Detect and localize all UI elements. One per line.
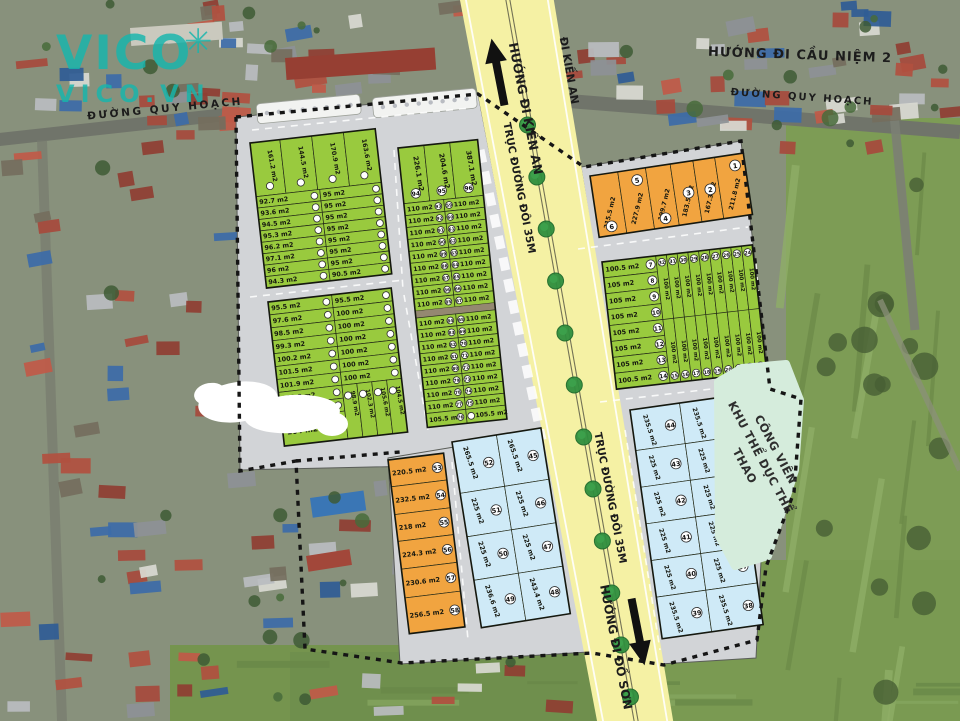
plot-number: 9 xyxy=(652,294,657,300)
plot-number-badge xyxy=(320,272,328,280)
plot-number: 31 xyxy=(669,259,676,266)
plot-number-badge xyxy=(331,376,339,384)
land-plot-map: 161.2 m2144.5 m2170.9 m2163.6 m292.7 m29… xyxy=(0,0,960,721)
plot-number-badge xyxy=(380,254,388,262)
plot-number: 52 xyxy=(484,458,494,467)
plot-number: 53 xyxy=(433,465,442,473)
plot-number: 69 xyxy=(459,329,466,336)
plot-number: 54 xyxy=(436,492,446,500)
plot-number: 32 xyxy=(658,260,665,267)
plot-number: 14 xyxy=(659,374,668,381)
plot-number-badge xyxy=(313,215,321,223)
logo-star-icon: ✳ xyxy=(184,22,213,62)
plot-number: 84 xyxy=(447,318,454,325)
plot-number-badge xyxy=(297,179,305,187)
plot-number-badge xyxy=(377,231,385,239)
plot-number-badge xyxy=(329,175,337,183)
plot-number: 43 xyxy=(671,460,681,469)
plot-number: 87 xyxy=(443,275,450,282)
plot-number: 17 xyxy=(693,371,700,378)
plot-number-badge xyxy=(333,389,341,397)
plot-number-badge xyxy=(312,203,320,211)
plot-number: 77 xyxy=(456,401,463,408)
plot-number-badge xyxy=(374,196,382,204)
plot-number: 67 xyxy=(456,298,463,305)
plot-number: 68 xyxy=(458,317,465,324)
plot-number-badge xyxy=(315,226,323,234)
plot xyxy=(460,486,511,536)
plot-number-badge xyxy=(374,388,382,396)
plot xyxy=(646,517,701,561)
plot-number: 73 xyxy=(464,376,471,383)
plot xyxy=(641,480,696,524)
plot-number-badge xyxy=(317,249,325,257)
plot-number: 46 xyxy=(536,499,547,508)
plot xyxy=(474,573,526,627)
plot-number: 76 xyxy=(457,414,464,421)
plot-number-badge xyxy=(323,298,331,306)
plot-number: 13 xyxy=(657,358,666,365)
plot-number: 8 xyxy=(650,278,655,284)
plot-number: 83 xyxy=(448,330,455,337)
plot-number-badge xyxy=(389,386,397,394)
plot-number-badge xyxy=(390,356,398,364)
plot-number: 90 xyxy=(439,239,446,246)
plot-number: 47 xyxy=(542,542,552,551)
plot xyxy=(636,444,691,488)
plot-number: 63 xyxy=(451,250,458,257)
plot-number-badge xyxy=(360,171,368,179)
plot-number-badge xyxy=(344,392,352,400)
plot-number-badge xyxy=(311,192,319,200)
plot-number: 12 xyxy=(655,342,664,349)
plot-number-badge xyxy=(376,219,384,227)
plot-number: 49 xyxy=(505,595,516,604)
plot-number: 71 xyxy=(462,353,469,360)
plot-number-badge xyxy=(381,265,389,273)
plot-number: 78 xyxy=(455,389,462,396)
plot-number: 89 xyxy=(440,251,447,258)
plot xyxy=(511,523,562,573)
plot-number: 11 xyxy=(654,326,663,333)
plot-number: 27 xyxy=(712,254,719,261)
plot-number: 91 xyxy=(438,227,445,234)
plot-number: 39 xyxy=(692,609,703,618)
plot-number: 70 xyxy=(460,341,467,348)
plot-number: 45 xyxy=(528,451,539,460)
plot-number-badge xyxy=(326,324,334,332)
plot xyxy=(518,566,570,620)
plot-number: 93 xyxy=(435,204,442,211)
plot xyxy=(452,435,505,493)
plot-number: 81 xyxy=(451,354,458,361)
plot-number-badge xyxy=(375,208,383,216)
plot-number: 19 xyxy=(714,368,721,375)
plot-number: 10 xyxy=(652,310,661,317)
plot-number: 79 xyxy=(453,378,460,385)
plot xyxy=(467,530,518,580)
plot-number: 25 xyxy=(733,251,740,258)
plot-number: 50 xyxy=(498,549,509,558)
plot-number: 57 xyxy=(446,575,455,583)
plot-number-badge xyxy=(387,330,395,338)
plot-number-badge xyxy=(318,261,326,269)
plot-number: 85 xyxy=(445,299,452,306)
plot-number: 38 xyxy=(743,601,754,610)
plot-number: 64 xyxy=(452,262,459,269)
plot-number: 94 xyxy=(411,190,420,198)
plot-number: 51 xyxy=(491,506,502,515)
plot-number: 7 xyxy=(648,263,653,269)
plot-number: 58 xyxy=(450,607,459,615)
plot-number-badge xyxy=(328,350,336,358)
watermark: VICO ✳ VICO.VN xyxy=(56,30,211,108)
plot-number: 82 xyxy=(450,342,457,349)
plot-number-badge xyxy=(372,185,380,193)
plot-number: 15 xyxy=(671,373,678,380)
plot-number: 44 xyxy=(666,421,677,430)
plot-number: 56 xyxy=(443,546,453,554)
plot-number: 61 xyxy=(448,226,455,233)
plot-number-badge xyxy=(327,337,335,345)
plot xyxy=(505,479,556,529)
plot-number: 40 xyxy=(686,569,697,578)
plot-number-badge xyxy=(467,412,474,419)
plot-number: 65 xyxy=(453,274,460,281)
plot xyxy=(496,428,549,486)
plot xyxy=(651,554,706,598)
plot-number: 88 xyxy=(441,263,448,270)
plot-number: 29 xyxy=(690,256,697,263)
plot-number-badge xyxy=(316,238,324,246)
plot-number: 42 xyxy=(676,496,686,505)
plot-number-badge xyxy=(324,311,332,319)
plot-number: 72 xyxy=(463,364,470,371)
plot-number-badge xyxy=(385,317,393,325)
plot-number: 75 xyxy=(467,400,474,407)
plot-number-badge xyxy=(388,343,396,351)
plot-number: 86 xyxy=(444,287,451,294)
plot-number: 48 xyxy=(550,588,561,597)
plot-number: 66 xyxy=(455,286,462,293)
plot-number: 95 xyxy=(437,188,446,196)
plot-number: 55 xyxy=(439,519,448,527)
block-a: 161.2 m2144.5 m2170.9 m2163.6 m292.7 m29… xyxy=(250,129,392,288)
plot-number-badge xyxy=(384,304,392,312)
plot-number-badge xyxy=(266,182,274,190)
plot-number: 60 xyxy=(447,214,454,221)
plot-number: 96 xyxy=(464,185,473,193)
plot-number: 80 xyxy=(452,366,459,373)
plot-number-badge xyxy=(330,363,338,371)
plot-number: 59 xyxy=(446,202,453,209)
plot-number-badge xyxy=(379,242,387,250)
plot-number: 74 xyxy=(465,388,472,395)
plot-number-badge xyxy=(359,390,367,398)
plot-number: 41 xyxy=(681,533,692,542)
plot-number: 62 xyxy=(450,238,457,245)
plot-number: 92 xyxy=(436,215,443,222)
plot-number-badge xyxy=(382,291,390,299)
plot-number-badge xyxy=(391,369,399,377)
plot xyxy=(706,583,763,632)
